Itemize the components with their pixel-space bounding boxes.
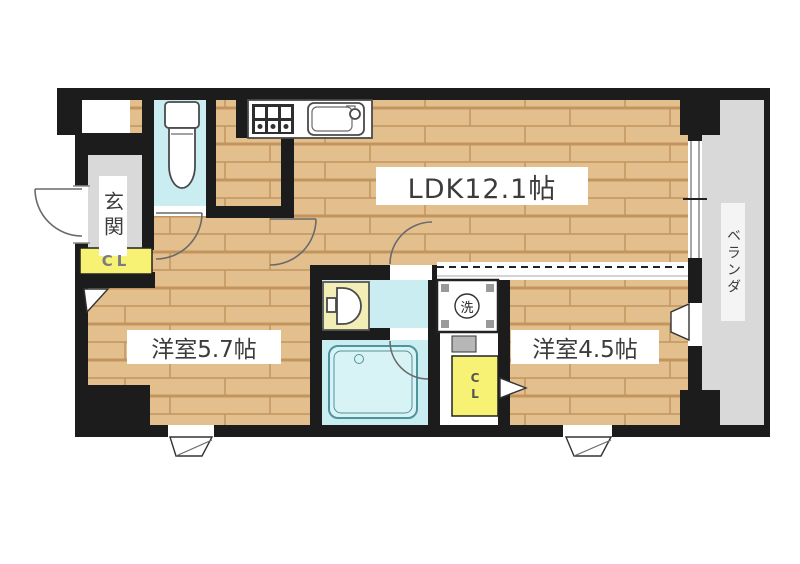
floor-plan: LDK12.1帖 洋室5.7帖 洋室4.5帖 玄関 ベランダ CL CL 洗 — [0, 0, 800, 564]
bathtub-icon — [329, 346, 417, 418]
vanity-sink-icon — [323, 282, 369, 330]
entrance-closet-label: CL — [80, 248, 152, 274]
toilet-icon — [165, 102, 199, 188]
kitchen-counter — [248, 100, 372, 138]
western-room-45-label: 洋室4.5帖 — [511, 330, 659, 364]
sliding-partition — [437, 262, 688, 280]
utility-box — [452, 336, 476, 352]
western-room-57-label: 洋室5.7帖 — [127, 330, 281, 364]
ldk-room-label: LDK12.1帖 — [376, 167, 588, 205]
room45-bottom-window — [566, 437, 611, 456]
room57-bottom-window — [170, 437, 212, 456]
entrance-label: 玄関 — [99, 176, 127, 256]
kitchen-sink-icon — [308, 103, 364, 135]
floor-plan-drawing — [0, 0, 800, 564]
room45-closet-label: CL — [461, 360, 489, 414]
stove-icon — [252, 104, 294, 134]
veranda-label: ベランダ — [721, 203, 745, 321]
washing-machine-label: 洗 — [455, 295, 479, 317]
